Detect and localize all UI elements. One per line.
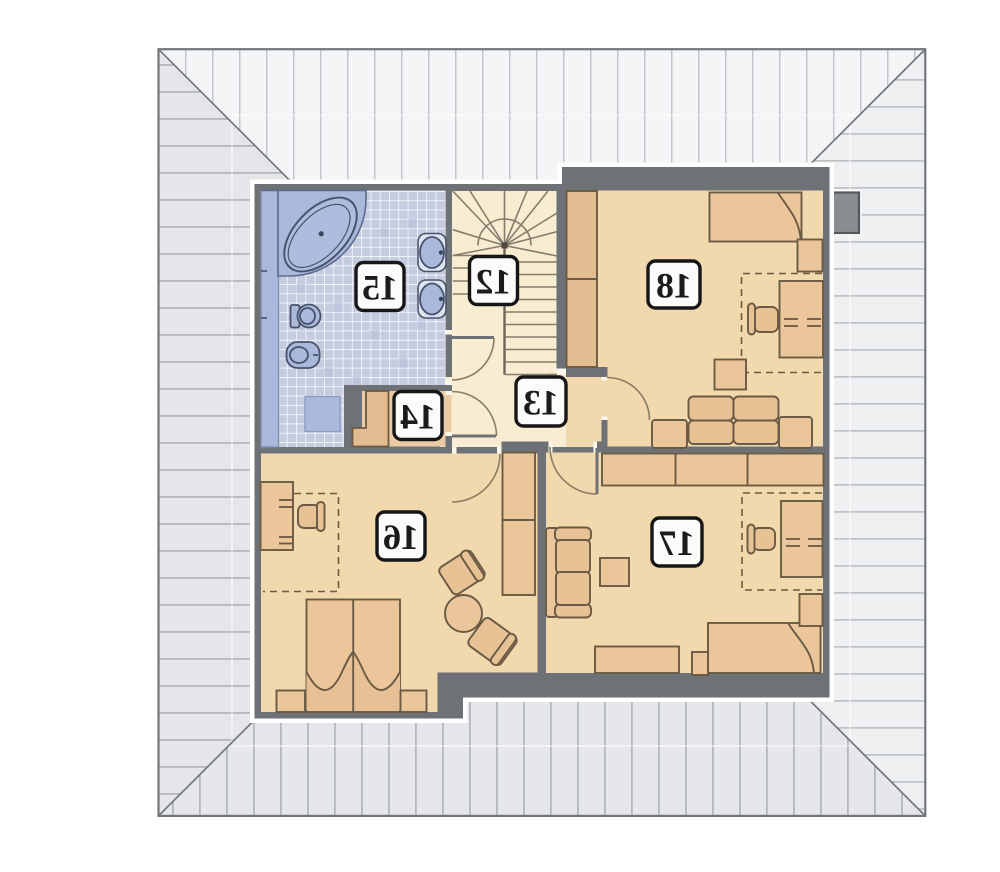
svg-text:18: 18 (657, 266, 692, 306)
svg-text:13: 13 (524, 383, 559, 423)
svg-text:16: 16 (384, 517, 419, 557)
svg-text:12: 12 (476, 262, 511, 302)
svg-text:15: 15 (363, 268, 398, 308)
svg-text:17: 17 (659, 523, 695, 563)
svg-text:14: 14 (400, 397, 436, 437)
